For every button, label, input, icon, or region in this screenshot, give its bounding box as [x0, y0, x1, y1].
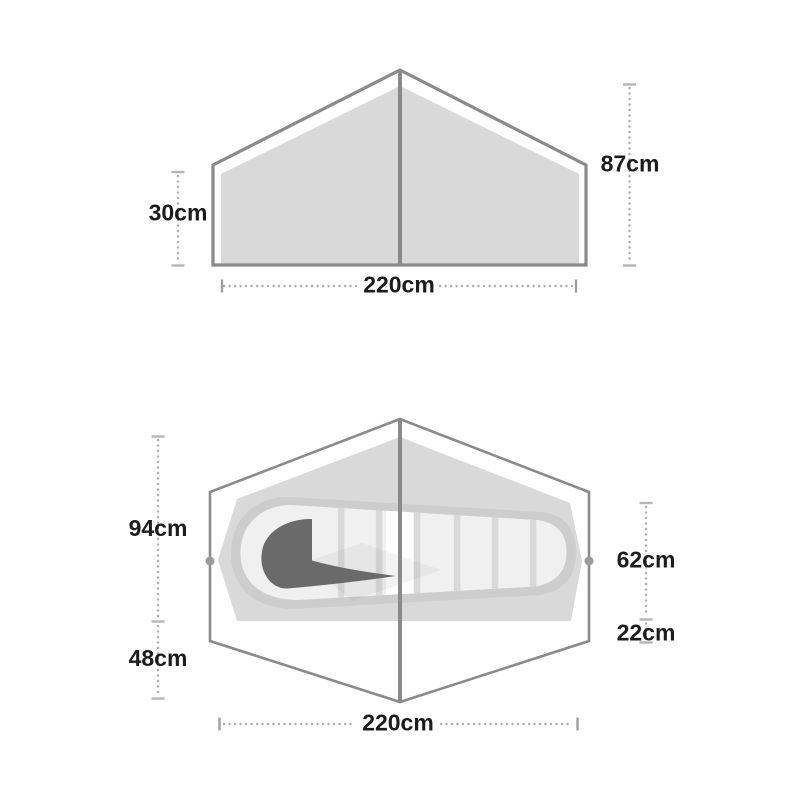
dim-plan-porch-depth: 48cm: [129, 626, 188, 699]
dim-side-peak-height: 87cm: [601, 85, 660, 266]
plan-base-length-label: 220cm: [362, 710, 434, 736]
side-peak-height-label: 87cm: [601, 151, 660, 177]
diagram-svg: 30cm 87cm 220cm: [0, 0, 800, 800]
dim-side-base-width: 220cm: [222, 272, 576, 298]
floor-plan-figure: 94cm 48cm 62cm 22cm 220cm: [129, 419, 676, 736]
plan-foot-offset-label: 22cm: [617, 620, 676, 646]
dim-plan-base-length: 220cm: [220, 710, 578, 736]
guy-point-dot-left: [206, 557, 215, 566]
dim-plan-foot-width: 62cm: [617, 503, 676, 620]
side-base-width-label: 220cm: [363, 272, 435, 298]
plan-foot-width-label: 62cm: [617, 547, 676, 573]
plan-inner-depth-label: 94cm: [129, 515, 188, 541]
side-wall-height-label: 30cm: [149, 200, 208, 226]
plan-porch-depth-label: 48cm: [129, 645, 188, 671]
tent-dimension-diagram: 30cm 87cm 220cm: [0, 0, 800, 800]
dim-side-wall-height: 30cm: [149, 172, 208, 266]
side-elevation-figure: 30cm 87cm 220cm: [149, 70, 660, 298]
dim-plan-inner-depth: 94cm: [129, 437, 188, 622]
guy-point-dot-right: [585, 557, 594, 566]
dim-plan-foot-offset: 22cm: [617, 620, 676, 646]
